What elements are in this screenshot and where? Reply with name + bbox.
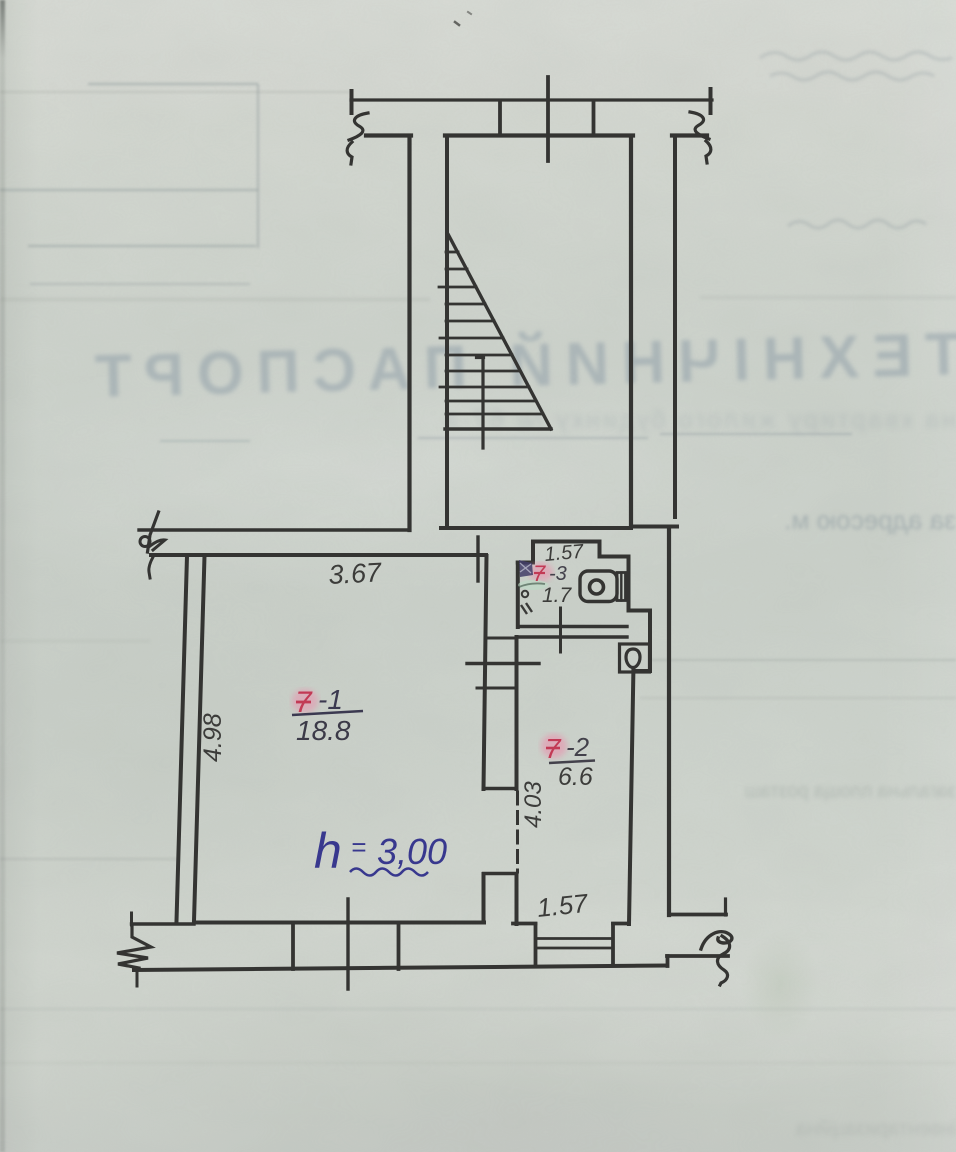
svg-text:-2: -2 bbox=[566, 732, 590, 762]
svg-text:4.03: 4.03 bbox=[520, 781, 547, 828]
svg-text:18.8: 18.8 bbox=[296, 715, 351, 746]
svg-text:-3: -3 bbox=[549, 563, 567, 585]
svg-text:=: = bbox=[351, 832, 366, 862]
svg-text:6.6: 6.6 bbox=[558, 763, 593, 791]
svg-text:1.7: 1.7 bbox=[542, 584, 573, 607]
svg-text:1.57: 1.57 bbox=[535, 888, 590, 923]
svg-text:3,00: 3,00 bbox=[377, 831, 447, 872]
svg-text:h: h bbox=[314, 823, 342, 879]
svg-text:3.67: 3.67 bbox=[328, 557, 383, 590]
svg-text:4.98: 4.98 bbox=[199, 713, 227, 762]
svg-text:-1: -1 bbox=[318, 684, 343, 715]
